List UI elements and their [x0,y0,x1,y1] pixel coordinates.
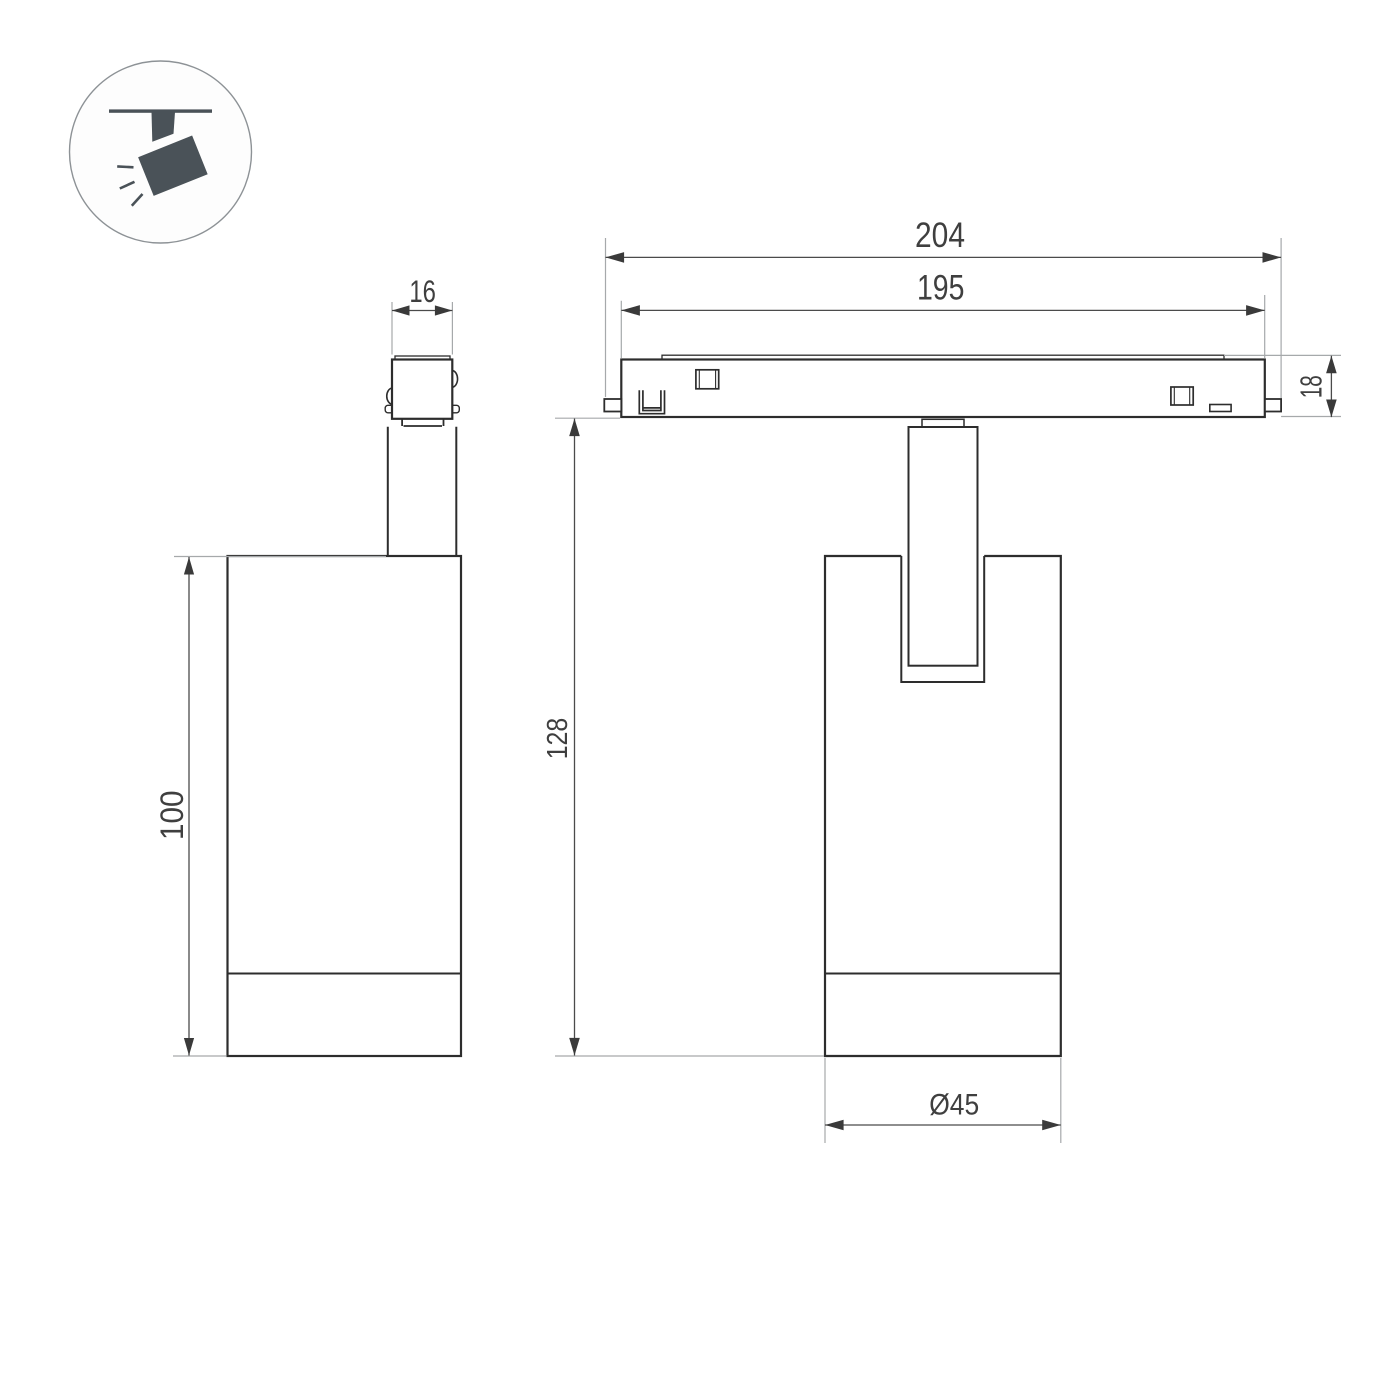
svg-text:195: 195 [917,268,965,307]
svg-text:Ø45: Ø45 [929,1089,979,1122]
svg-text:100: 100 [154,791,190,841]
svg-text:204: 204 [915,216,965,255]
svg-text:18: 18 [1295,375,1329,398]
svg-text:128: 128 [542,718,574,760]
svg-text:16: 16 [409,273,436,309]
